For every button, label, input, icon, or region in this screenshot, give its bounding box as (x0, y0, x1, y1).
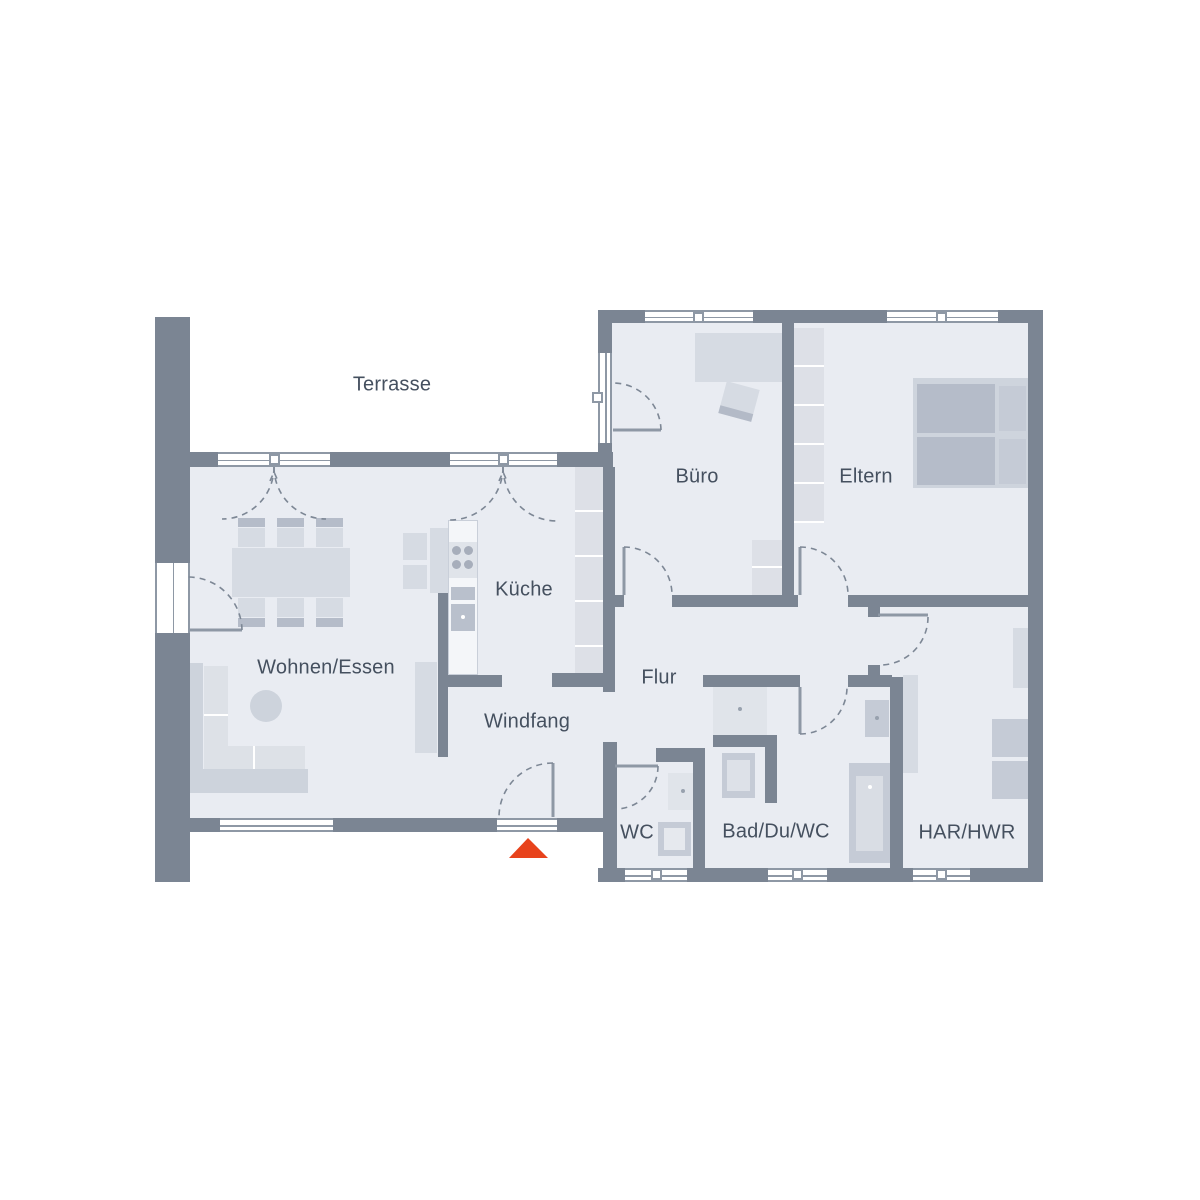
kitchen-cabinet (403, 565, 427, 589)
kitchen-fridge (430, 528, 448, 593)
bathtub (849, 763, 890, 863)
coffee-table (250, 690, 282, 722)
entrance-arrow (509, 838, 548, 858)
window-tick (592, 392, 603, 403)
room-label-terrasse: Terrasse (353, 374, 431, 397)
pillow (999, 439, 1026, 484)
window-tick (936, 312, 947, 323)
toilet (658, 822, 691, 856)
wall-kueche-south (552, 673, 615, 687)
wall (333, 818, 497, 832)
wall (190, 452, 218, 467)
wall-stub (868, 607, 880, 617)
room-label-har-hwr: HAR/HWR (919, 822, 1016, 845)
wall (598, 310, 645, 323)
dining-chair-backrest (316, 518, 343, 527)
room-label-eltern: Eltern (839, 466, 892, 489)
wall (827, 868, 913, 882)
dining-chair (238, 598, 265, 617)
wall (155, 818, 220, 832)
cooktop (449, 542, 477, 578)
eltern-wardrobe (794, 328, 824, 523)
dining-table (232, 548, 350, 597)
wall (970, 868, 1043, 882)
washbasin (722, 753, 755, 798)
window-tick (269, 454, 280, 465)
window-tick (936, 869, 947, 880)
burner (452, 546, 461, 555)
wall-bad-north (703, 675, 800, 687)
window-tick (693, 312, 704, 323)
room-label-windfang: Windfang (484, 711, 570, 734)
dining-chair-backrest (238, 618, 265, 627)
dining-chair-backrest (277, 618, 304, 627)
wall-buero-eltern (782, 323, 794, 607)
shower (713, 683, 767, 735)
wall (753, 310, 887, 323)
wall (330, 452, 450, 467)
sofa-back (177, 769, 308, 793)
wall (598, 323, 612, 353)
wall (155, 317, 190, 563)
window-tick (651, 869, 662, 880)
wall-kueche-south (445, 675, 502, 687)
floor-plan: Terrasse Büro Eltern Küche Wohnen/Essen … (0, 0, 1200, 1200)
wall (603, 832, 617, 882)
wall-shower-partition (713, 735, 777, 747)
room-label-buero: Büro (675, 466, 718, 489)
burner (452, 560, 461, 569)
dining-chair (316, 528, 343, 547)
dining-chair-backrest (277, 518, 304, 527)
wall-wohnen-windfang (438, 593, 448, 757)
room-label-kueche: Küche (495, 579, 553, 602)
wall-flur-north (672, 595, 798, 607)
burner (464, 546, 473, 555)
dining-chair (277, 528, 304, 547)
buero-closet (752, 540, 782, 595)
entrance-door-threshold (497, 818, 557, 832)
wall-eltern-south (848, 595, 1028, 607)
wohnen-south-window (220, 818, 333, 832)
sofa-seat (204, 746, 305, 769)
room-label-wohnen-essen: Wohnen/Essen (257, 657, 395, 680)
window-tick (498, 454, 509, 465)
wall-bad-east (890, 677, 903, 868)
window-tick (792, 869, 803, 880)
mattress (917, 437, 995, 485)
wall-bad-north (848, 675, 892, 687)
burner (464, 560, 473, 569)
wall-kueche-east (603, 467, 615, 692)
wall (155, 633, 190, 882)
har-shelf (903, 675, 918, 773)
kitchen-sink (451, 604, 475, 631)
wall-wc-bad (693, 748, 705, 868)
toilet (865, 700, 889, 737)
dining-chair-backrest (316, 618, 343, 627)
pillow (999, 386, 1026, 431)
wall (1028, 310, 1043, 882)
room-label-bad: Bad/Du/WC (722, 821, 829, 844)
room-label-flur: Flur (641, 667, 676, 690)
wohnen-west-terrace-door (155, 563, 190, 633)
dining-chair (316, 598, 343, 617)
dining-chair-backrest (238, 518, 265, 527)
wall (598, 443, 612, 467)
har-closet (1013, 628, 1029, 688)
desk (695, 333, 783, 382)
dining-chair (277, 598, 304, 617)
wall-windfang-wc (603, 742, 617, 832)
sideboard (415, 662, 437, 753)
washing-machine (992, 719, 1028, 757)
dining-chair (238, 528, 265, 547)
kitchen-sink (451, 587, 475, 600)
kitchen-cabinet (403, 533, 427, 560)
dryer (992, 761, 1028, 799)
mattress (917, 384, 995, 433)
wall-shower-partition (765, 747, 777, 803)
wall (687, 868, 768, 882)
kitchen-tall-cabinets (575, 467, 603, 673)
room-label-wc: WC (620, 822, 654, 845)
